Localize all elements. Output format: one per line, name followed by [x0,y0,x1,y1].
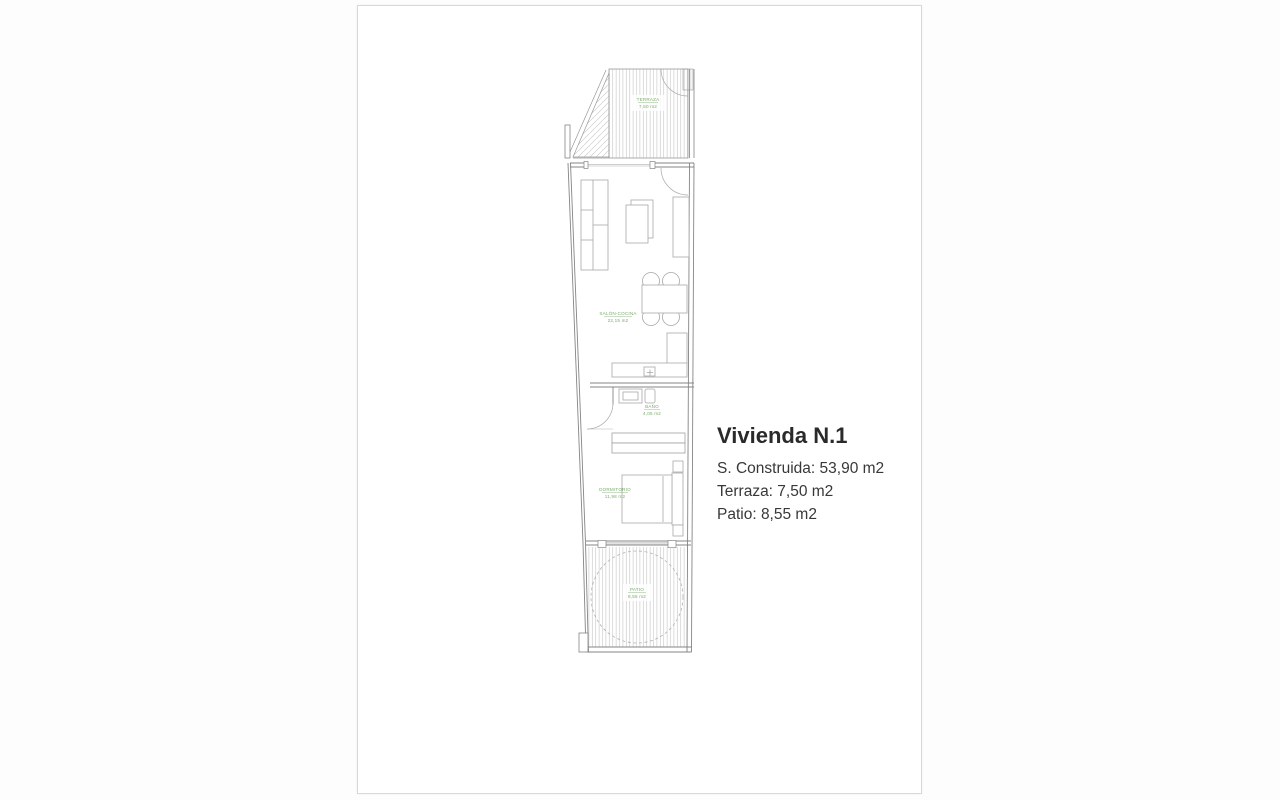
bath-door-arc [587,403,613,429]
bathroom-area-label: 4,05 m2 [643,411,661,416]
built-surface-line: S. Construida: 53,90 m2 [717,457,884,480]
terrace-label: TERRAZA [637,97,661,102]
nightstand-bottom [673,525,683,536]
patio-area-label: 8,55 m2 [628,594,646,599]
nightstand-top [673,461,683,472]
patio-pillar [579,633,588,652]
kitchen-counter-bottom [612,333,687,377]
unit-info-block: Vivienda N.1 S. Construida: 53,90 m2 Ter… [717,422,884,526]
bathroom-label: BAÑO [645,403,659,409]
terrace-side-wall [565,125,570,158]
terrace-area-label: 7,50 m2 [639,104,657,109]
bed [622,475,672,523]
terrace-hatch [609,69,688,158]
kitchen-counter-right [673,197,689,257]
room-labels: TERRAZA 7,50 m2 SALÓN-COCINA 22,15 m2 BA… [599,95,665,601]
terrace-ramp [573,73,609,157]
entrance-door-arc [661,168,688,195]
terrace-line: Terraza: 7,50 m2 [717,480,884,503]
toilet [645,389,655,403]
bedroom-patio-wall [586,541,691,548]
patio-line: Patio: 8,55 m2 [717,503,884,526]
bed-headboard [672,473,683,525]
bedroom-area-label: 11,98 m2 [605,494,626,499]
terrace-hatch-right [683,69,693,90]
coffee-table [626,200,653,243]
kitchen-sink [644,367,655,376]
bathroom [587,383,694,429]
bedroom [622,461,683,536]
dining-table [642,285,687,313]
living-room [581,180,689,377]
livingroom-area-label: 22,15 m2 [608,318,629,323]
sofa [581,180,608,270]
terrace-window [584,162,655,169]
livingroom-label: SALÓN-COCINA [599,310,637,316]
terrace-area [565,69,694,158]
bedroom-label: DORMITORIO [599,487,631,492]
unit-title: Vivienda N.1 [717,422,884,450]
floor-plan-drawing: TERRAZA 7,50 m2 SALÓN-COCINA 22,15 m2 BA… [560,55,710,665]
wardrobe [612,433,685,453]
patio-label: PATIO [630,587,644,592]
plan-sheet: TERRAZA 7,50 m2 SALÓN-COCINA 22,15 m2 BA… [357,5,922,794]
